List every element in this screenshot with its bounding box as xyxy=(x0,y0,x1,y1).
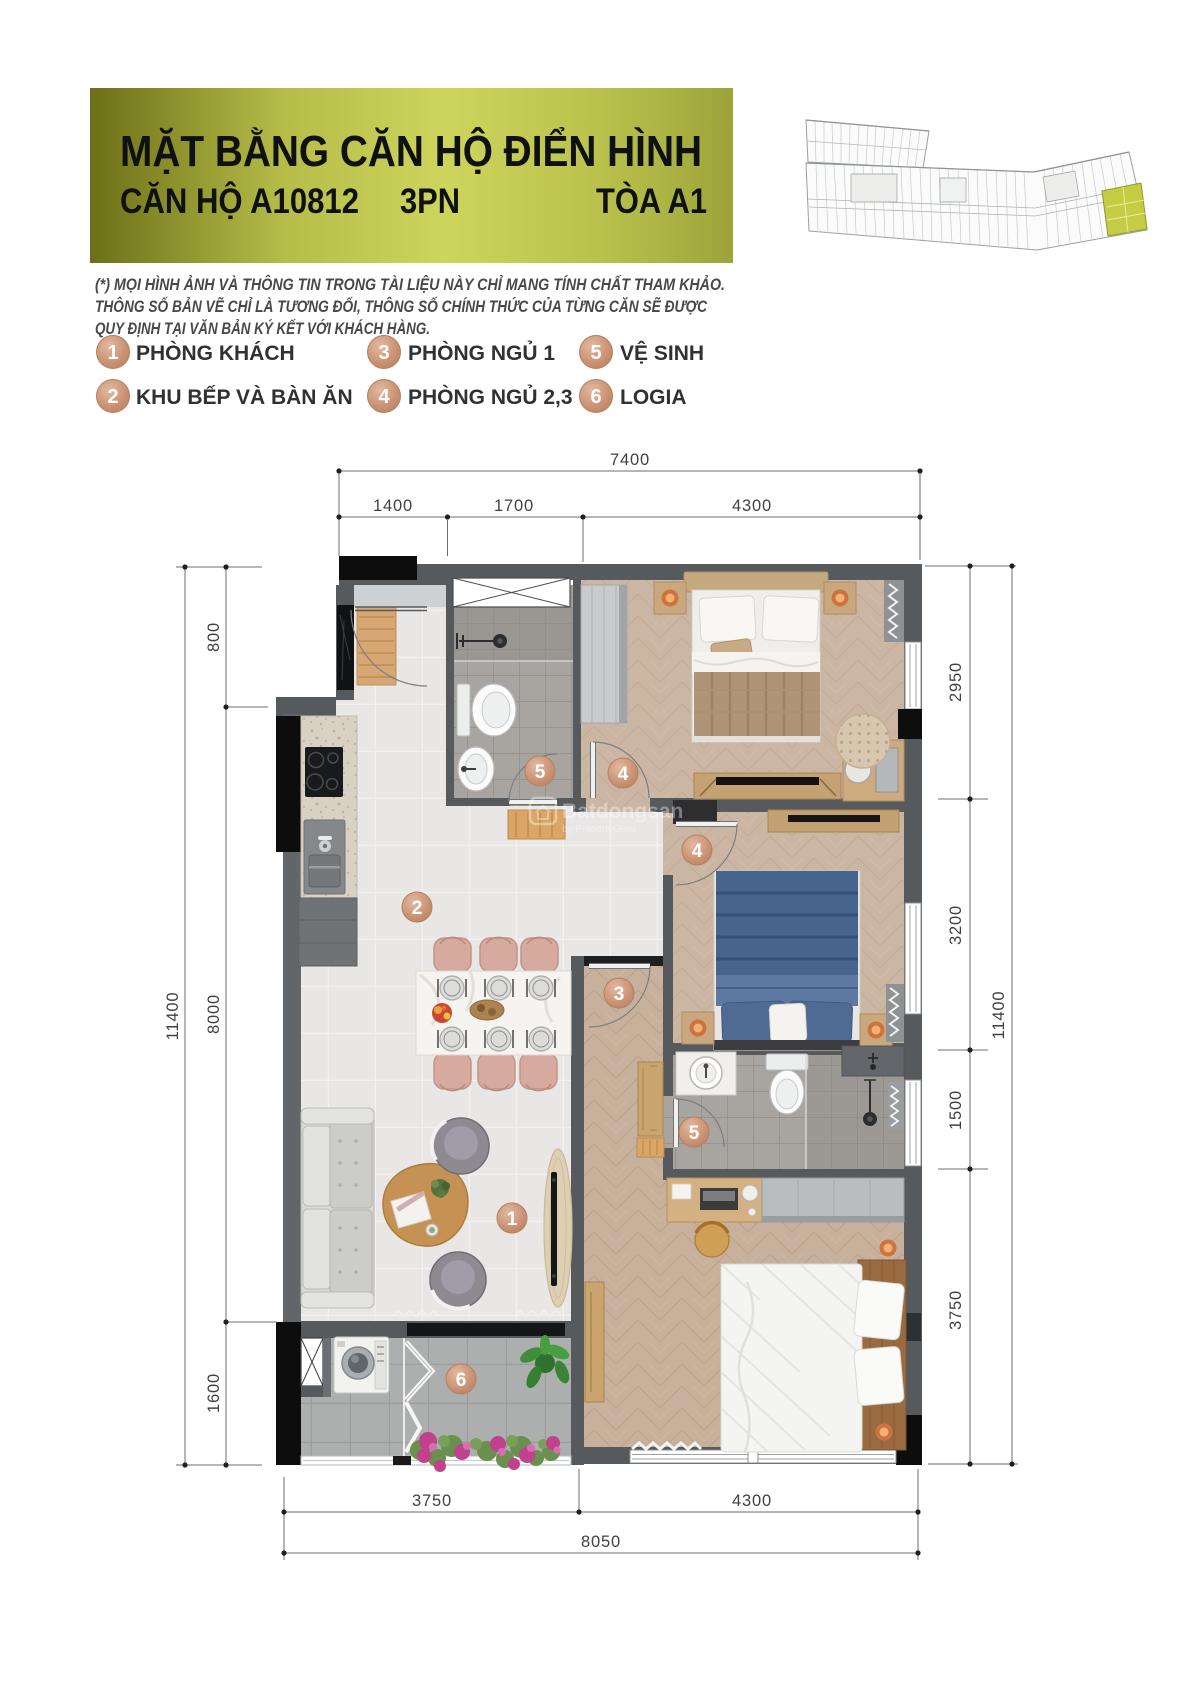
svg-text:8050: 8050 xyxy=(581,1533,621,1551)
svg-text:3: 3 xyxy=(614,984,625,1005)
svg-text:6: 6 xyxy=(456,1370,467,1391)
svg-text:1400: 1400 xyxy=(373,497,413,515)
svg-text:5: 5 xyxy=(689,1123,700,1144)
svg-text:CĂN HỘ A10812: CĂN HỘ A10812 xyxy=(120,181,359,221)
svg-text:1: 1 xyxy=(507,1209,518,1230)
svg-text:1700: 1700 xyxy=(494,497,534,515)
svg-text:3750: 3750 xyxy=(412,1492,452,1510)
svg-text:1600: 1600 xyxy=(205,1373,223,1413)
svg-text:1500: 1500 xyxy=(947,1090,965,1130)
svg-text:PHÒNG NGỦ 2,3: PHÒNG NGỦ 2,3 xyxy=(408,385,573,409)
svg-text:6: 6 xyxy=(590,386,601,408)
svg-text:THÔNG SỐ BẢN VẼ CHỈ LÀ TƯƠNG Đ: THÔNG SỐ BẢN VẼ CHỈ LÀ TƯƠNG ĐỐI, THÔNG … xyxy=(95,296,708,316)
svg-text:1: 1 xyxy=(107,342,118,364)
svg-text:QUY ĐỊNH TẠI VĂN BẢN KÝ KẾT VỚ: QUY ĐỊNH TẠI VĂN BẢN KÝ KẾT VỚI KHÁCH HÀ… xyxy=(95,319,430,338)
svg-text:PHÒNG NGỦ 1: PHÒNG NGỦ 1 xyxy=(408,341,555,365)
svg-text:by PropertyGuru: by PropertyGuru xyxy=(562,824,635,835)
svg-text:7400: 7400 xyxy=(610,451,650,469)
svg-text:3200: 3200 xyxy=(947,905,965,945)
svg-text:8000: 8000 xyxy=(205,994,223,1034)
svg-text:MẶT BẰNG CĂN HỘ ĐIỂN HÌNH: MẶT BẰNG CĂN HỘ ĐIỂN HÌNH xyxy=(120,125,702,176)
svg-text:PHÒNG KHÁCH: PHÒNG KHÁCH xyxy=(136,341,295,365)
svg-text:TÒA A1: TÒA A1 xyxy=(596,181,707,221)
svg-text:3: 3 xyxy=(378,342,389,364)
svg-text:2950: 2950 xyxy=(947,662,965,702)
svg-text:4: 4 xyxy=(618,764,629,785)
svg-text:4: 4 xyxy=(378,386,390,408)
svg-text:4: 4 xyxy=(692,841,703,862)
svg-text:3750: 3750 xyxy=(947,1290,965,1330)
svg-text:4300: 4300 xyxy=(732,1492,772,1510)
svg-text:4300: 4300 xyxy=(732,497,772,515)
svg-text:(*) MỌI HÌNH ẢNH VÀ THÔNG TIN: (*) MỌI HÌNH ẢNH VÀ THÔNG TIN TRONG TÀI … xyxy=(95,275,725,294)
svg-text:2: 2 xyxy=(107,386,118,408)
svg-text:3PN: 3PN xyxy=(400,182,460,221)
svg-text:11400: 11400 xyxy=(990,991,1008,1040)
svg-text:VỆ SINH: VỆ SINH xyxy=(620,341,704,365)
svg-text:800: 800 xyxy=(205,622,223,652)
svg-text:5: 5 xyxy=(590,342,601,364)
svg-text:2: 2 xyxy=(412,898,423,919)
svg-text:5: 5 xyxy=(535,762,546,783)
svg-text:LOGIA: LOGIA xyxy=(620,386,687,409)
svg-text:Batdongsan: Batdongsan xyxy=(562,800,683,823)
svg-text:11400: 11400 xyxy=(164,992,182,1041)
svg-text:KHU BẾP VÀ BÀN ĂN: KHU BẾP VÀ BÀN ĂN xyxy=(136,386,353,409)
